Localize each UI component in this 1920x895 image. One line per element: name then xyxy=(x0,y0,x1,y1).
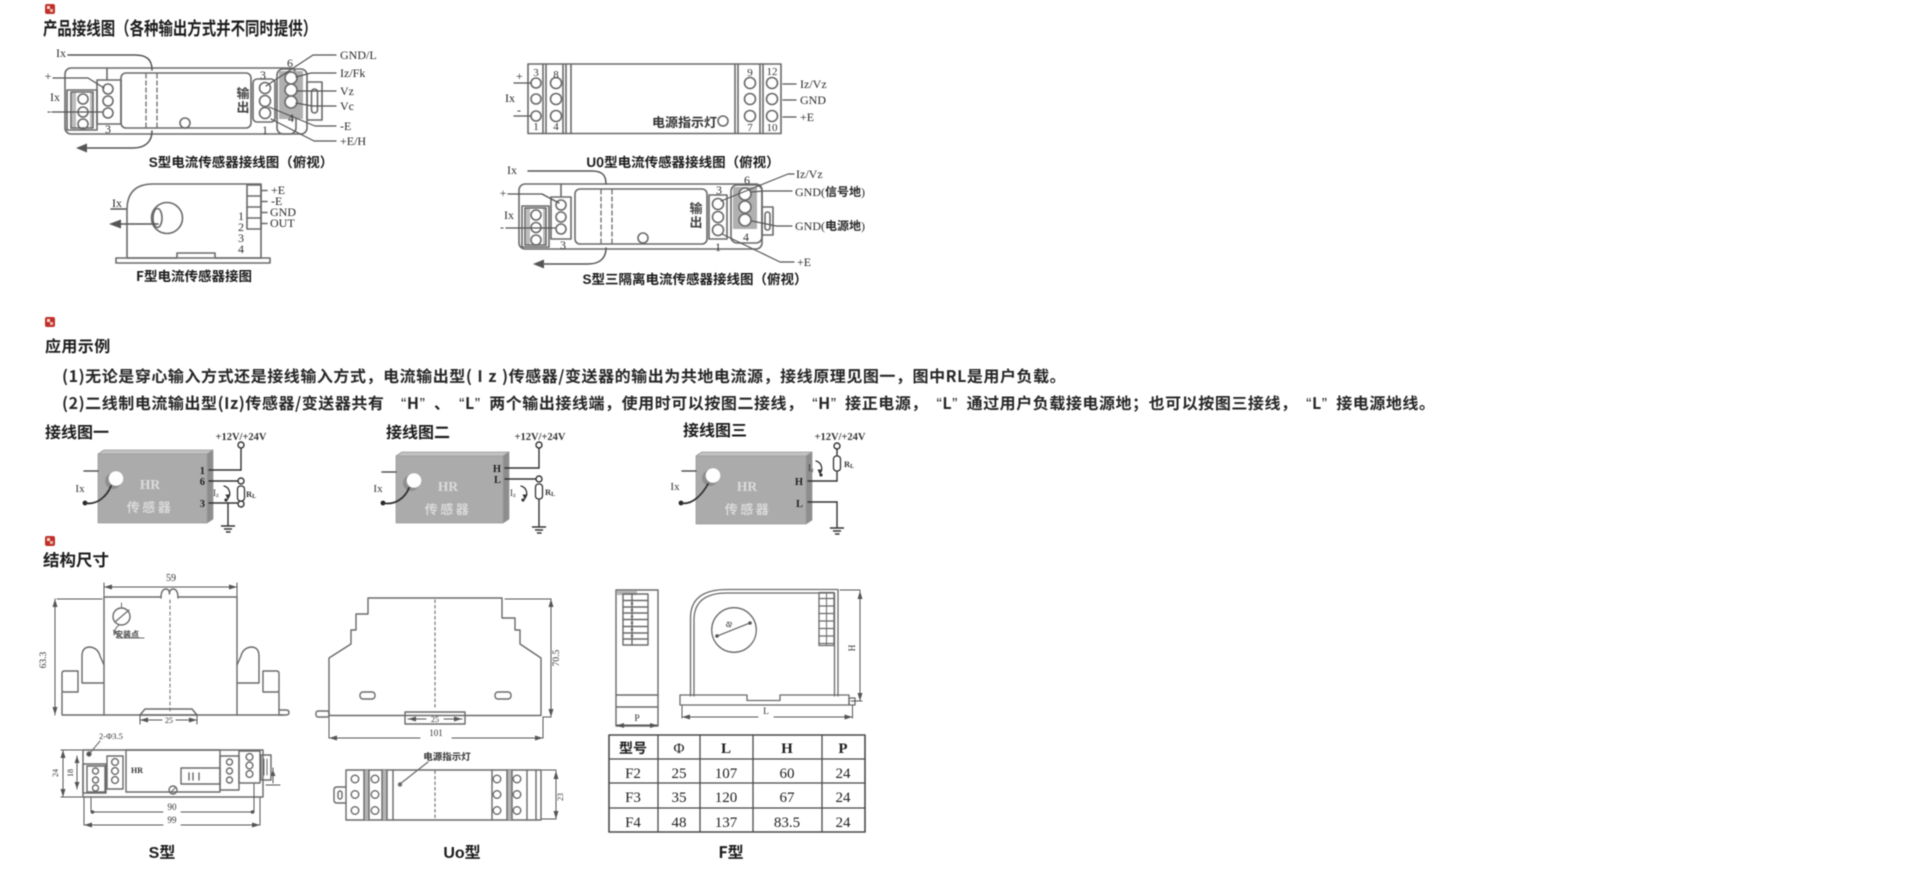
svg-text:RL: RL xyxy=(844,459,854,470)
svg-text:电源指示灯: 电源指示灯 xyxy=(652,112,717,131)
svg-text:3: 3 xyxy=(533,67,539,79)
svg-text:25: 25 xyxy=(672,766,687,782)
svg-text:GND: GND xyxy=(800,93,826,107)
svg-text:3: 3 xyxy=(560,238,566,252)
svg-text:L: L xyxy=(494,475,501,486)
svg-text:RL: RL xyxy=(545,487,555,498)
svg-text:HR: HR xyxy=(140,477,161,492)
svg-text:-: - xyxy=(517,103,521,117)
svg-text:3: 3 xyxy=(105,122,111,136)
svg-text:F型电流传感器接图: F型电流传感器接图 xyxy=(136,265,252,285)
svg-text:Iz/Fk: Iz/Fk xyxy=(340,66,365,80)
svg-text:63.3: 63.3 xyxy=(39,651,49,668)
svg-text:S型电流传感器接线图（俯视）: S型电流传感器接线图（俯视） xyxy=(149,151,334,171)
svg-text:Iz: Iz xyxy=(510,488,516,499)
svg-text:6: 6 xyxy=(744,173,750,187)
svg-text:GND(信号地): GND(信号地) xyxy=(795,185,865,199)
svg-text:59: 59 xyxy=(166,573,176,584)
svg-text:Ix: Ix xyxy=(504,208,514,222)
svg-text:安装点: 安装点 xyxy=(115,629,139,640)
svg-text:Iz: Iz xyxy=(213,488,219,499)
svg-text:8: 8 xyxy=(553,69,559,81)
svg-text:出: 出 xyxy=(236,97,249,116)
svg-text:70.5: 70.5 xyxy=(552,649,562,666)
svg-text:H: H xyxy=(781,741,793,757)
svg-text:+E: +E xyxy=(797,255,811,269)
svg-text:+12V/+24V: +12V/+24V xyxy=(814,432,865,443)
svg-text:99: 99 xyxy=(168,815,178,825)
svg-text:Φ: Φ xyxy=(674,741,685,757)
svg-text:Ix: Ix xyxy=(505,91,515,105)
svg-text:24: 24 xyxy=(51,769,60,777)
svg-text:18: 18 xyxy=(66,769,75,777)
svg-text:Ix: Ix xyxy=(112,196,122,210)
svg-text:F2: F2 xyxy=(625,766,641,782)
svg-text:Ix: Ix xyxy=(56,46,66,60)
svg-text:4: 4 xyxy=(238,242,244,256)
svg-text:1: 1 xyxy=(200,466,205,477)
svg-text:25: 25 xyxy=(165,716,173,725)
svg-text:48: 48 xyxy=(672,815,687,831)
svg-text:HR: HR xyxy=(131,766,143,775)
svg-text:-: - xyxy=(500,220,504,234)
svg-text:H: H xyxy=(493,464,501,475)
svg-text:+: + xyxy=(516,69,523,83)
svg-text:Vc: Vc xyxy=(340,99,354,113)
svg-text:83.5: 83.5 xyxy=(774,815,800,831)
svg-text:24: 24 xyxy=(836,766,852,782)
svg-text:+12V/+24V: +12V/+24V xyxy=(514,432,565,443)
svg-text:Ix: Ix xyxy=(507,163,517,177)
svg-text:90: 90 xyxy=(168,802,178,812)
svg-text:H: H xyxy=(795,477,803,488)
svg-text:HR: HR xyxy=(438,479,459,494)
svg-text:U0型电流传感器接线图（俯视）: U0型电流传感器接线图（俯视） xyxy=(586,151,779,171)
svg-text:137: 137 xyxy=(715,815,738,831)
svg-text:4: 4 xyxy=(743,230,749,244)
svg-text:GND(电源地): GND(电源地) xyxy=(795,219,865,233)
svg-text:F型: F型 xyxy=(718,839,743,863)
svg-text:24: 24 xyxy=(836,790,852,806)
svg-text:HR: HR xyxy=(737,479,758,494)
svg-text:型号: 型号 xyxy=(619,738,647,758)
svg-text:P: P xyxy=(634,714,639,724)
svg-text:P: P xyxy=(838,741,847,757)
svg-text:3: 3 xyxy=(200,499,205,510)
svg-text:120: 120 xyxy=(715,790,738,806)
svg-text:1: 1 xyxy=(715,240,721,254)
svg-text:35: 35 xyxy=(672,790,687,806)
svg-text:107: 107 xyxy=(715,766,738,782)
svg-text:传感器: 传感器 xyxy=(127,497,174,516)
svg-text:3: 3 xyxy=(260,68,266,82)
svg-text:Ix: Ix xyxy=(373,483,383,495)
svg-text:出: 出 xyxy=(689,212,702,231)
svg-text:F4: F4 xyxy=(625,815,641,831)
svg-text:-: - xyxy=(47,104,51,118)
svg-text:+: + xyxy=(500,186,507,200)
svg-text:1: 1 xyxy=(262,123,268,137)
svg-text:101: 101 xyxy=(429,728,443,738)
svg-text:电源指示灯: 电源指示灯 xyxy=(423,749,471,763)
svg-text:OUT: OUT xyxy=(270,216,295,230)
svg-text:L: L xyxy=(721,741,731,757)
svg-text:F3: F3 xyxy=(625,790,641,806)
svg-text:1: 1 xyxy=(533,121,539,133)
svg-text:2-Φ3.5: 2-Φ3.5 xyxy=(99,731,123,741)
svg-text:RL: RL xyxy=(246,489,256,500)
svg-text:Uo型: Uo型 xyxy=(443,839,480,863)
svg-text:+E: +E xyxy=(800,110,814,124)
svg-text:4: 4 xyxy=(553,121,559,133)
svg-text:L: L xyxy=(763,707,769,717)
svg-text:+12V/+24V: +12V/+24V xyxy=(215,432,266,443)
svg-text:Φ: Φ xyxy=(724,618,735,630)
svg-text:Vz: Vz xyxy=(340,84,354,98)
svg-text:Ix: Ix xyxy=(50,90,60,104)
svg-text:10: 10 xyxy=(767,122,779,134)
svg-text:Ix: Ix xyxy=(75,483,85,495)
svg-text:Ix: Ix xyxy=(670,481,680,493)
svg-text:+E/H: +E/H xyxy=(340,134,366,148)
svg-text:H: H xyxy=(847,644,857,651)
svg-text:Iz/Vz: Iz/Vz xyxy=(796,167,823,181)
svg-text:传感器: 传感器 xyxy=(425,499,472,518)
svg-text:S型三隔离电流传感器接线图（俯视）: S型三隔离电流传感器接线图（俯视） xyxy=(582,268,807,288)
svg-text:7: 7 xyxy=(747,122,753,134)
svg-text:L: L xyxy=(796,499,803,510)
svg-text:+: + xyxy=(45,69,52,83)
svg-text:6: 6 xyxy=(200,477,205,488)
svg-text:25: 25 xyxy=(431,715,439,724)
svg-text:23: 23 xyxy=(556,793,565,801)
svg-text:60: 60 xyxy=(780,766,795,782)
svg-text:6: 6 xyxy=(287,56,293,70)
svg-text:9: 9 xyxy=(747,67,753,79)
svg-text:-E: -E xyxy=(340,119,351,133)
svg-text:传感器: 传感器 xyxy=(725,499,772,518)
svg-text:GND/L: GND/L xyxy=(340,48,377,62)
svg-text:Iz/Vz: Iz/Vz xyxy=(800,77,827,91)
svg-text:S型: S型 xyxy=(149,839,176,863)
svg-text:12: 12 xyxy=(767,66,778,78)
svg-text:24: 24 xyxy=(836,815,852,831)
svg-text:67: 67 xyxy=(780,790,796,806)
svg-text:4: 4 xyxy=(288,111,294,125)
svg-text:3: 3 xyxy=(716,183,722,197)
